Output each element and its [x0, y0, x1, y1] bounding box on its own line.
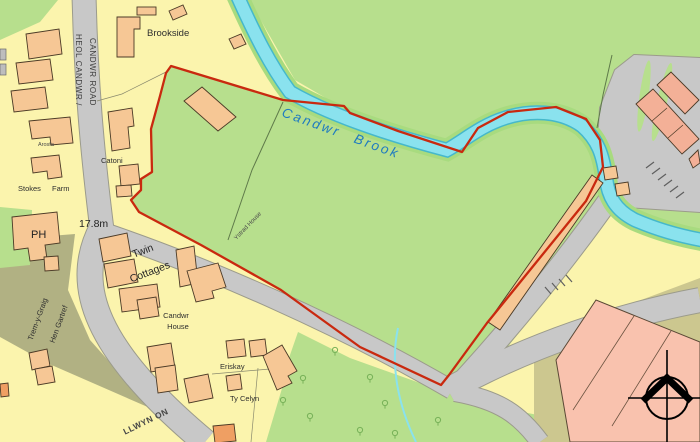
label-stokes: Stokes: [18, 184, 41, 193]
label-spot-height: 17.8m: [79, 218, 108, 230]
building: [119, 164, 140, 186]
label-brookside: Brookside: [147, 28, 189, 39]
building: [184, 374, 213, 403]
map-canvas: Brookside HEOL CANDWR / CANDWR ROAD Cand…: [0, 0, 700, 442]
building: [26, 29, 62, 59]
building: [137, 7, 156, 15]
label-ty-celyn: Ty Celyn: [230, 394, 259, 403]
label-arosfa: Arosfa: [38, 142, 55, 148]
building: [213, 424, 236, 442]
building: [603, 166, 618, 180]
building: [137, 297, 159, 319]
building: [155, 365, 178, 393]
building: [615, 182, 630, 196]
structure: [0, 64, 6, 75]
building: [0, 383, 9, 397]
structure: [0, 49, 6, 60]
building: [226, 339, 246, 358]
site-location-map: Brookside HEOL CANDWR / CANDWR ROAD Cand…: [0, 0, 700, 442]
building: [116, 185, 132, 197]
label-farm: Farm: [52, 184, 70, 193]
label-ph: PH: [31, 229, 46, 241]
label-eriskay: Eriskay: [220, 362, 245, 371]
building-ty-celyn: [226, 374, 242, 391]
label-candwr-house-1: Candwr: [163, 311, 189, 320]
label-catoni: Catoni: [101, 156, 123, 165]
building: [16, 59, 53, 84]
building: [249, 339, 267, 357]
label-candwr-house-2: House: [167, 322, 189, 331]
building: [11, 87, 48, 112]
building: [44, 256, 59, 271]
label-heol-candwr-2: CANDWR ROAD: [88, 38, 97, 106]
building: [35, 366, 55, 385]
label-heol-candwr-1: HEOL CANDWR /: [74, 34, 83, 106]
